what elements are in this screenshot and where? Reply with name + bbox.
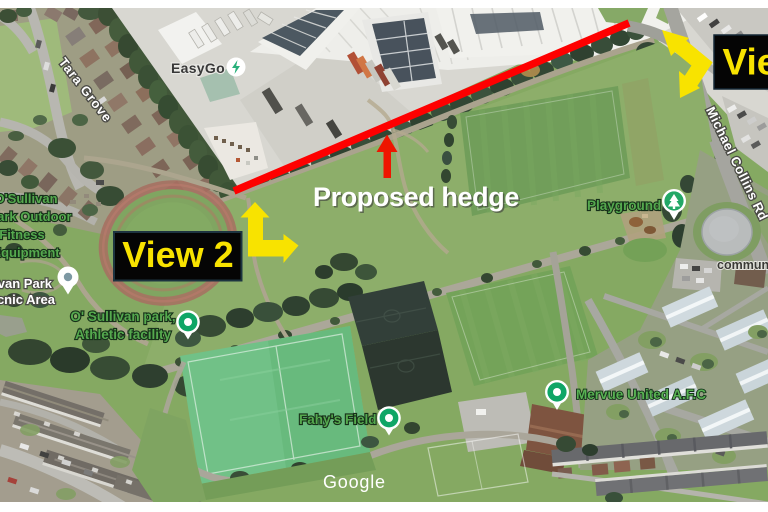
svg-text:View 2: View 2 bbox=[122, 234, 233, 275]
svg-text:Proposed hedge: Proposed hedge bbox=[313, 182, 519, 212]
svg-text:EasyGo: EasyGo bbox=[171, 60, 225, 76]
svg-text:van Park: van Park bbox=[0, 276, 53, 291]
svg-text:Google: Google bbox=[323, 472, 386, 492]
svg-text:Equipment: Equipment bbox=[0, 245, 60, 260]
svg-text:O'Sullivan: O'Sullivan bbox=[0, 191, 58, 206]
svg-text:Playground: Playground bbox=[587, 198, 661, 213]
svg-text:O' Sullivan park,: O' Sullivan park, bbox=[70, 309, 175, 324]
svg-text:communit: communit bbox=[717, 258, 768, 272]
svg-text:Athletic facility: Athletic facility bbox=[75, 327, 172, 342]
svg-text:Park Outdoor: Park Outdoor bbox=[0, 209, 72, 224]
svg-text:cnic Area: cnic Area bbox=[0, 292, 56, 307]
svg-text:Vie: Vie bbox=[723, 42, 768, 83]
svg-text:Fahy's Field: Fahy's Field bbox=[299, 412, 376, 427]
svg-text:Fitness: Fitness bbox=[0, 227, 45, 242]
svg-text:Mervue United A.F.C: Mervue United A.F.C bbox=[576, 387, 706, 402]
